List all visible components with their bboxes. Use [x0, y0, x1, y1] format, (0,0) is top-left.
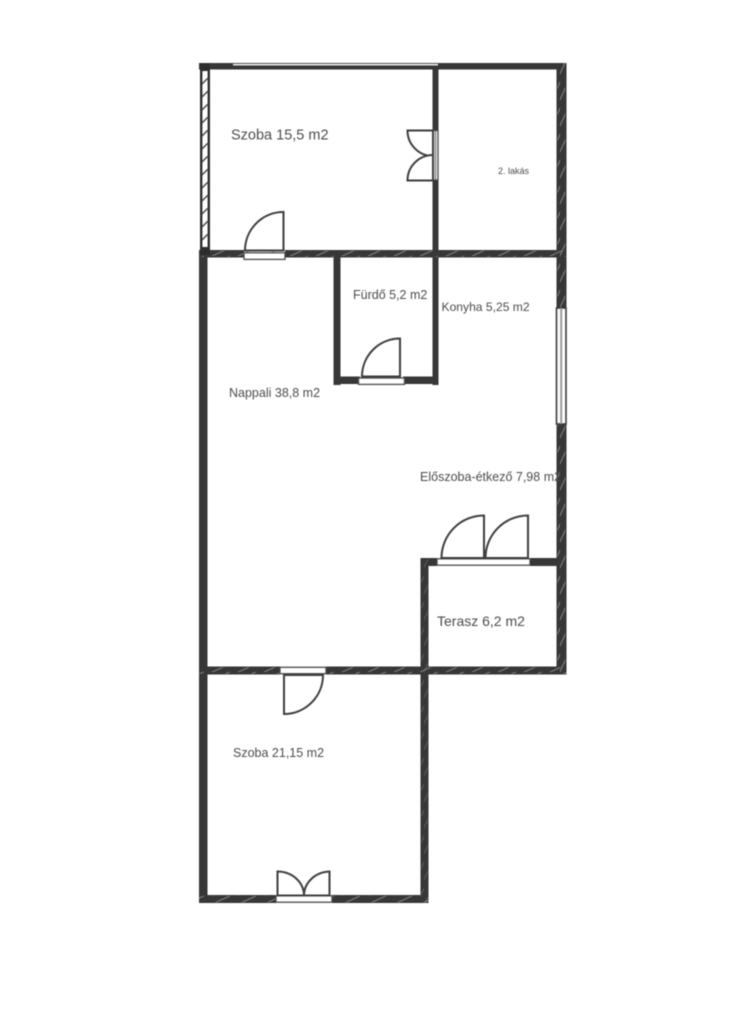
svg-text:Szoba 15,5 m2: Szoba 15,5 m2	[231, 128, 329, 144]
svg-text:Nappali 38,8 m2: Nappali 38,8 m2	[229, 386, 320, 400]
svg-text:2. lakás: 2. lakás	[498, 166, 530, 176]
svg-text:Fürdő 5,2 m2: Fürdő 5,2 m2	[353, 288, 427, 302]
svg-text:Konyha 5,25 m2: Konyha 5,25 m2	[442, 300, 530, 314]
svg-text:Szoba 21,15 m2: Szoba 21,15 m2	[233, 746, 324, 760]
svg-text:Terasz 6,2 m2: Terasz 6,2 m2	[437, 613, 525, 629]
svg-text:Előszoba-étkező 7,98 m2: Előszoba-étkező 7,98 m2	[420, 470, 561, 484]
